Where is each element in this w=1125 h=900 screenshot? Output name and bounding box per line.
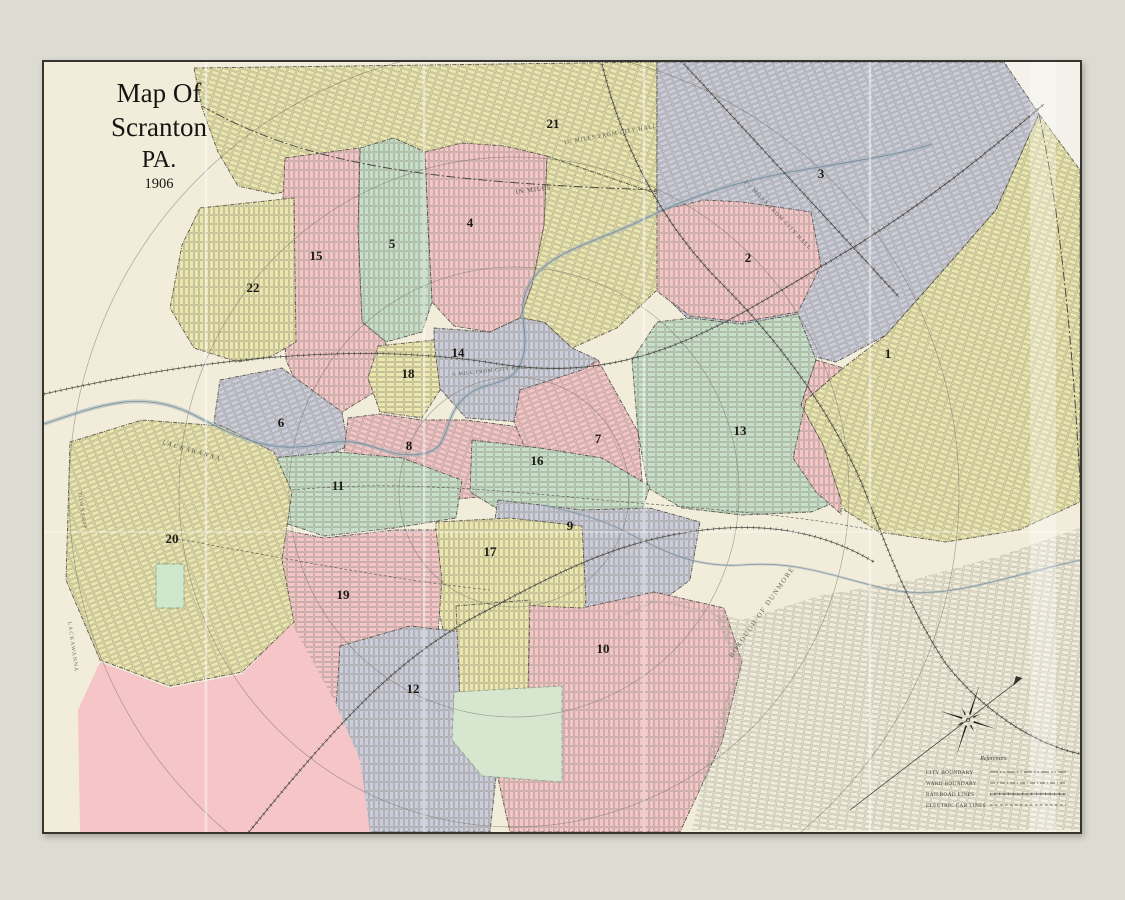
- ward-number-label: 3: [818, 166, 825, 181]
- ward-number-label: 12: [407, 681, 420, 696]
- ward-number-label: 2: [745, 250, 752, 265]
- photo-background: 21312134515226141887161191719201210LACKA…: [0, 0, 1125, 900]
- ward-number-label: 13: [734, 423, 748, 438]
- legend-title: References.: [979, 755, 1008, 762]
- ward-number-label: 9: [567, 518, 574, 533]
- ward-number-label: 21: [547, 116, 560, 131]
- ward-number-label: 14: [452, 345, 466, 360]
- ward-number-label: 6: [278, 415, 285, 430]
- map-title-line3: PA.: [142, 147, 176, 173]
- legend-item-label: ELECTRIC CAR LINES: [926, 803, 986, 809]
- ward-number-label: 8: [406, 438, 413, 453]
- ward-number-label: 11: [332, 478, 344, 493]
- ward-number-label: 5: [389, 236, 396, 251]
- ward-number-label: 20: [166, 531, 179, 546]
- ward-number-label: 1: [885, 346, 892, 361]
- scranton-ward-map: 21312134515226141887161191719201210LACKA…: [44, 62, 1080, 832]
- ward-number-label: 7: [595, 431, 602, 446]
- map-sheet: 21312134515226141887161191719201210LACKA…: [42, 60, 1082, 834]
- map-title-line4: 1906: [145, 176, 174, 192]
- map-title-line1: Map Of: [117, 78, 202, 108]
- ward-number-label: 15: [310, 248, 324, 263]
- ward-number-label: 17: [484, 544, 498, 559]
- park-central: [156, 564, 184, 608]
- ward-number-label: 18: [402, 366, 416, 381]
- ward-20-streets: [66, 420, 294, 686]
- ward-number-label: 10: [597, 641, 610, 656]
- legend-item-label: RAILROAD LINES: [926, 792, 974, 798]
- map-title-line2: Scranton: [111, 112, 207, 142]
- ward-number-label: 16: [531, 453, 545, 468]
- legend-item-label: CITY BOUNDARY: [926, 770, 974, 776]
- legend-item-label: WARD BOUNDARY: [926, 781, 977, 787]
- fold-crease-band: [1030, 62, 1056, 832]
- ward-number-label: 22: [247, 280, 260, 295]
- ward-number-label: 19: [337, 587, 351, 602]
- ward-number-label: 4: [467, 215, 474, 230]
